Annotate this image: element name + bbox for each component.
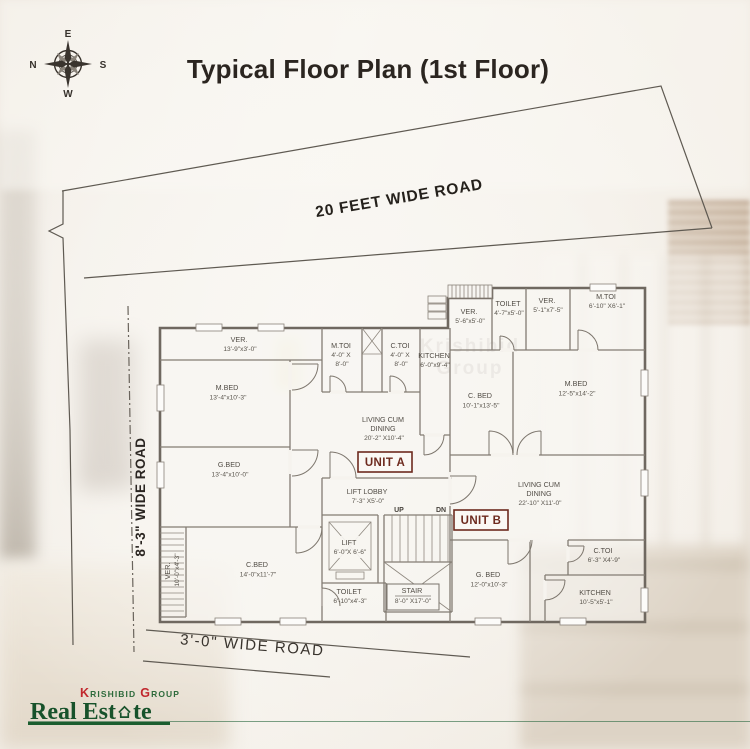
floor-plan-poster: Typical Floor Plan (1st Floor) Krishibid… [0,0,750,749]
unit-a-badge: UNIT A [358,452,412,472]
logo-word-roup: ROUP [151,689,180,699]
footer-rule-line [28,721,750,722]
logo-letter-g: G [140,686,151,700]
page-title: Typical Floor Plan (1st Floor) [0,54,736,85]
svg-text:UNIT A: UNIT A [365,457,405,469]
road-left-outer-line [49,191,73,645]
logo-group-name: KRISHIBIDGROUP [80,686,180,700]
svg-text:UNIT B: UNIT B [461,515,502,527]
compass-w: W [63,89,73,100]
road-label-left: 8'-3" WIDE ROAD [133,437,148,556]
floor-plan-drawing: VER. 13'-9"x3'-0" M.TOI 4'-0" X 8'-0" C.… [0,0,750,749]
road-label-bottom: 3'-0" WIDE ROAD [180,631,326,660]
unit-b-badge: UNIT B [454,510,508,530]
stair-label-box: STAIR 8'-0" X17'-0" [387,584,439,610]
logo-word-rishibid: RISHIBID [90,689,136,699]
stair-up-label: UP [394,507,404,514]
road-top-lower-line [84,228,712,278]
road-label-top: 20 FEET WIDE ROAD [314,176,484,221]
logo: KRISHIBIDGROUP Real Estte [18,686,180,726]
stair-dn-label: DN [436,507,446,514]
compass-e: E [65,29,72,40]
road-bottom-lower-line [143,661,330,677]
logo-letter-k: K [80,686,90,700]
